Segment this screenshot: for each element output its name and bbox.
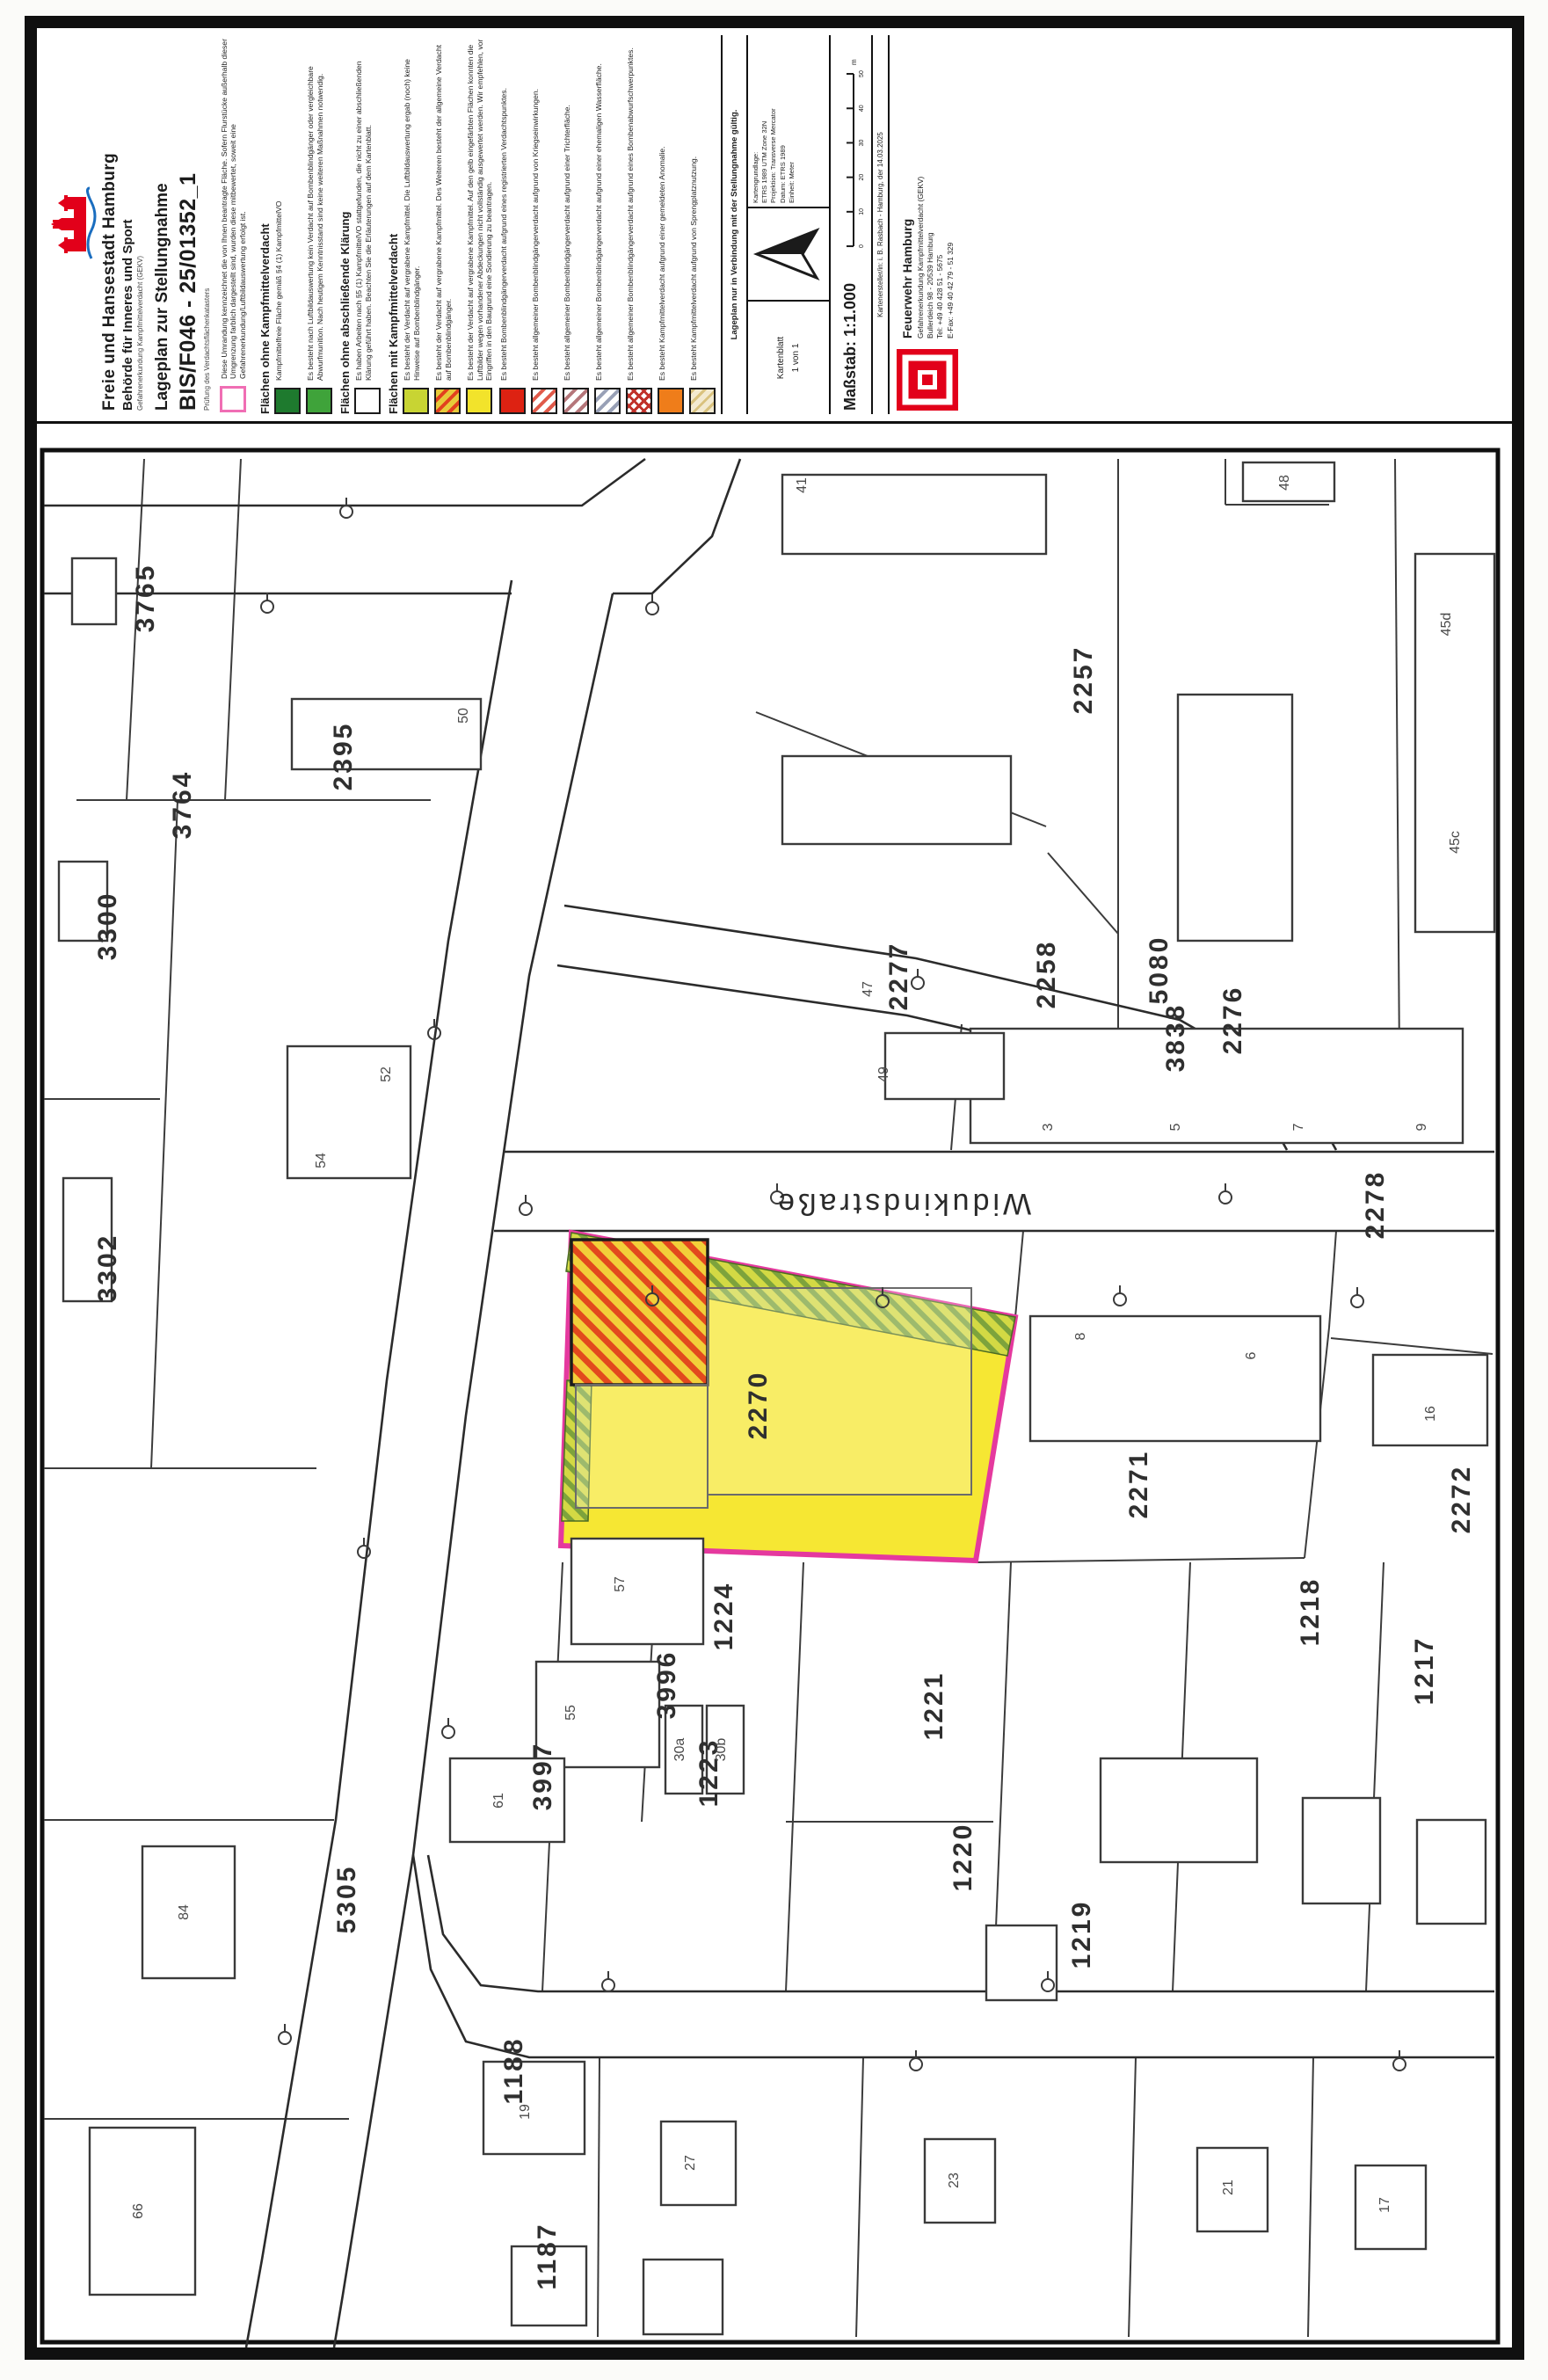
parcel-label-1221: 1221 (919, 1671, 948, 1741)
legend-section-title: Flächen ohne abschließende Klärung (338, 35, 352, 414)
house-number-label: 52 (379, 1066, 394, 1082)
house-number-label: 16 (1423, 1406, 1438, 1422)
legend-entry: Es besteht allgemeiner Bombenblindgänger… (531, 35, 557, 414)
parcel-label-1219: 1219 (1067, 1900, 1096, 1969)
parcel-label-2257: 2257 (1069, 645, 1098, 715)
legend-entry: Es besteht allgemeiner Bombenblindgänger… (563, 35, 589, 414)
legend-entry-text: Es besteht der Verdacht auf vergrabene K… (466, 35, 493, 381)
legend-entry: Es besteht Kampfmittelverdacht aufgrund … (689, 35, 716, 414)
building-outline (1417, 1820, 1486, 1924)
building-outline (782, 475, 1046, 554)
document-reference: BIS/F046 - 25/01352_1 (176, 39, 201, 411)
legend-swatch-lime-icon (403, 388, 429, 414)
house-number-label: 49 (876, 1066, 891, 1082)
house-number-label: 27 (683, 2155, 698, 2171)
legend-entry: Es besteht Kampfmittelverdacht aufgrund … (658, 35, 684, 414)
building-outline (1373, 1355, 1487, 1445)
legend-swatch-gray-hatch-icon (594, 388, 621, 414)
parcel-label-3997: 3997 (528, 1742, 557, 1811)
legend-entry: Es haben Arbeiten nach §5 (1) Kampfmitte… (354, 35, 381, 414)
title-legend-column: Freie und Hansestadt Hamburg Behörde für… (37, 28, 1512, 424)
map-basis-line: Datum: ETRS 1989 (779, 39, 788, 203)
house-number-label: 9 (1414, 1123, 1429, 1131)
house-number-label: 19 (518, 2104, 533, 2120)
legend-entry: Es besteht der Verdacht auf vergrabene K… (434, 35, 461, 414)
fire-tel: Tel: +49 40 428 51 - 5675 (935, 177, 945, 338)
parcel-label-3838: 3838 (1161, 1003, 1190, 1073)
legend-entry-text: Es besteht allgemeiner Bombenblindgänger… (626, 47, 635, 381)
parcel-label-2270: 2270 (744, 1371, 773, 1440)
house-number-label: 66 (131, 2203, 146, 2219)
parcel-label-2276: 2276 (1218, 986, 1247, 1055)
svg-text:0: 0 (859, 244, 865, 248)
house-number-label: 54 (314, 1153, 329, 1168)
scale-label: Maßstab: (841, 341, 859, 411)
agency-unit: Gefahrenerkundung Kampfmittelverdacht (G… (136, 39, 144, 411)
title-block: Freie und Hansestadt Hamburg Behörde für… (42, 35, 216, 414)
house-number-label: 84 (177, 1904, 192, 1920)
request-area-note: Diese Umrandung kennzeichnet die von Ihn… (216, 35, 252, 414)
legend-entry-text: Es besteht Bombenblindgängerverdacht auf… (499, 88, 508, 381)
legend-entry-text: Es besteht der Verdacht auf vergrabene K… (403, 35, 421, 381)
legend-swatch-red-cross-icon (626, 388, 652, 414)
fire-brigade-block: Feuerwehr Hamburg Gefahrenerkundung Kamp… (888, 35, 965, 414)
building-outline (72, 558, 116, 624)
legend-entry-text: Kampfmittelfreie Fläche gemäß §4 (1) Kam… (274, 201, 283, 381)
parcel-label-2258: 2258 (1032, 940, 1061, 1009)
house-number-label: 30b (714, 1738, 729, 1762)
validity-note: Lageplan nur in Verbindung mit der Stell… (721, 35, 746, 414)
legend-entry-text: Es besteht allgemeiner Bombenblindgänger… (594, 63, 603, 381)
legend-entry: Es besteht allgemeiner Bombenblindgänger… (626, 35, 652, 414)
building-outline (885, 1033, 1004, 1099)
house-number-label: 45d (1439, 613, 1454, 637)
house-number-label: 41 (795, 477, 810, 493)
fire-address: Bullerdeich 98 - 20539 Hamburg (926, 177, 935, 338)
building-outline (986, 1925, 1057, 2000)
house-number-label: 23 (947, 2173, 962, 2188)
building-outline (643, 2260, 723, 2334)
map-basis-info: Kartengrundlage:ETRS 1989 UTM Zone 32NPr… (748, 35, 829, 207)
parcel-label-2272: 2272 (1447, 1465, 1476, 1534)
document-subtitle: Prüfung des Verdachtsflächenkatasters (203, 39, 211, 411)
lageplan-sheet: 3765376423953300330253052257225850803838… (25, 16, 1524, 2360)
house-number-label: 7 (1291, 1123, 1306, 1131)
parcel-label-1187: 1187 (533, 2222, 562, 2289)
house-number-label: 61 (491, 1793, 506, 1809)
building-outline (571, 1539, 703, 1644)
legend-swatch-orange-icon (658, 388, 684, 414)
building-outline (782, 756, 1011, 844)
house-number-label: 50 (456, 708, 471, 724)
parcel-label-3765: 3765 (131, 564, 160, 633)
parcel-label-1224: 1224 (709, 1582, 738, 1651)
parcel-label-3764: 3764 (168, 770, 197, 840)
parcel-label-2278: 2278 (1361, 1170, 1390, 1240)
parcel-label-1220: 1220 (948, 1823, 977, 1892)
map-basis-line: Projektion: Transverse Mercator (769, 39, 778, 203)
parcel-label-1217: 1217 (1410, 1636, 1439, 1706)
house-number-label: 48 (1277, 475, 1292, 491)
legend-entry: Es besteht Bombenblindgängerverdacht auf… (499, 35, 526, 414)
svg-text:30: 30 (859, 139, 865, 146)
map-canvas: 3765376423953300330253052257225850803838… (37, 424, 1512, 2347)
legend-swatch-white-icon (354, 388, 381, 414)
svg-text:20: 20 (859, 174, 865, 181)
parcel-label-1188: 1188 (499, 2036, 528, 2104)
agency-department: Behörde für Inneres und Sport (120, 39, 135, 411)
parcel-label-3302: 3302 (93, 1234, 122, 1303)
legend-swatch-beige-hatch-icon (689, 388, 716, 414)
feuerwehr-hamburg-logo-icon (895, 347, 960, 412)
creator-line: Kartenersteller/in: i. B. Rasbach - Hamb… (871, 35, 888, 414)
map-area: 3765376423953300330253052257225850803838… (37, 424, 1512, 2347)
rotated-sheet-wrapper: 3765376423953300330253052257225850803838… (25, 16, 1524, 2360)
suspect-building-red-hatch (571, 1240, 708, 1385)
legend-section-title: Flächen mit Kampfmittelverdacht (387, 35, 400, 414)
legend-swatch-red-hatch-icon (531, 388, 557, 414)
legend-entry: Es besteht allgemeiner Bombenblindgänger… (594, 35, 621, 414)
legend-entry: Kampfmittelfreie Fläche gemäß §4 (1) Kam… (274, 35, 301, 414)
hamburg-coat-of-arms-icon (44, 187, 98, 263)
legend-section-title: Flächen ohne Kampfmittelverdacht (258, 35, 272, 414)
map-basis-line: ETRS 1989 UTM Zone 32N (760, 39, 769, 203)
north-arrow-cell (748, 207, 829, 300)
document-type: Lageplan zur Stellungnahme (153, 39, 172, 411)
house-number-label: 55 (563, 1705, 578, 1721)
house-number-label: 45c (1448, 831, 1463, 854)
legend-swatch-yellow-icon (466, 388, 492, 414)
legend-entry: Es besteht nach Luftbildauswertung kein … (306, 35, 332, 414)
legend-entry-text: Es haben Arbeiten nach §5 (1) Kampfmitte… (354, 35, 373, 381)
house-number-label: 3 (1041, 1123, 1056, 1131)
legend-entry-text: Es besteht der Verdacht auf vergrabene K… (434, 35, 453, 381)
legend-entry: Es besteht der Verdacht auf vergrabene K… (403, 35, 429, 414)
svg-text:50: 50 (859, 70, 865, 77)
svg-text:40: 40 (859, 105, 865, 112)
parcel-label-2395: 2395 (329, 722, 358, 791)
legend-entry-text: Es besteht nach Luftbildauswertung kein … (306, 35, 324, 381)
legend-sections: Flächen ohne KampfmittelverdachtKampfmit… (252, 35, 720, 414)
legend-entry-text: Es besteht allgemeiner Bombenblindgänger… (563, 105, 571, 381)
parcel-label-1218: 1218 (1296, 1577, 1325, 1647)
house-number-label: 17 (1377, 2197, 1392, 2213)
house-number-label: 6 (1244, 1351, 1259, 1359)
fire-fax: E-Fax: +49 40 42 79 - 51 329 (946, 177, 956, 338)
legend-entry-text: Es besteht Kampfmittelverdacht aufgrund … (658, 146, 666, 381)
building-outline (1303, 1798, 1380, 1903)
building-outline (292, 699, 481, 769)
map-basis-line: Einheit: Meter (788, 39, 796, 203)
request-outline-swatch-icon (220, 386, 246, 412)
building-outline-highlighted (576, 1385, 708, 1508)
house-number-label: 5 (1168, 1123, 1183, 1131)
parcel-label-2277: 2277 (884, 942, 913, 1011)
building-outline (1415, 554, 1494, 932)
house-number-label: 57 (613, 1576, 628, 1592)
house-number-label: 47 (861, 981, 876, 997)
parcel-label-2271: 2271 (1124, 1450, 1153, 1519)
fire-dept: Gefahrenerkundung Kampfmittelverdacht (G… (916, 177, 926, 338)
page-background: 3765376423953300330253052257225850803838… (0, 0, 1548, 2380)
legend-swatch-brown-hatch-icon (563, 388, 589, 414)
parcel-label-3300: 3300 (93, 892, 122, 961)
kartenblatt-value: 1 von 1 (791, 305, 801, 411)
request-area-note-text: Diese Umrandung kennzeichnet die von Ihn… (220, 37, 247, 379)
house-number-label: 8 (1073, 1332, 1088, 1340)
legend-swatch-green-icon (306, 388, 332, 414)
kartenblatt-label: Kartenblatt (776, 305, 786, 411)
kartenblatt-cell: Kartenblatt 1 von 1 (748, 300, 829, 414)
legend-swatch-lime-red-hatch-icon (434, 388, 461, 414)
legend-entry: Es besteht der Verdacht auf vergrabene K… (466, 35, 493, 414)
parcel-label-5305: 5305 (332, 1865, 361, 1934)
map-meta-row: Kartenblatt 1 von 1 Kartengrundlage:ETRS… (746, 35, 829, 414)
north-arrow-icon (752, 223, 825, 285)
fire-title: Feuerwehr Hamburg (899, 177, 916, 338)
map-basis-line: Kartengrundlage: (752, 39, 760, 203)
house-number-label: 21 (1221, 2180, 1236, 2195)
legend-swatch-dark-green-icon (274, 388, 301, 414)
scale-row: Maßstab: 1:1.000 01020304050m (829, 35, 871, 414)
building-outline (1178, 695, 1292, 941)
building-outline (661, 2122, 736, 2205)
scanned-lageplan-page: { "header": { "agency_line1": "Freie und… (0, 0, 1548, 2380)
legend-entry-text: Es besteht Kampfmittelverdacht aufgrund … (689, 156, 698, 381)
legend-swatch-red-icon (499, 388, 526, 414)
house-number-label: 30a (672, 1738, 687, 1762)
building-outline (1101, 1758, 1257, 1862)
svg-text:m: m (850, 59, 858, 65)
parcel-label-3996: 3996 (652, 1650, 681, 1720)
scale-bar: 01020304050m (836, 39, 866, 274)
street-name-label: Widukindstraße (774, 1187, 1031, 1220)
svg-text:10: 10 (859, 208, 865, 215)
agency-name: Freie und Hansestadt Hamburg (100, 39, 120, 411)
parcel-label-5080: 5080 (1145, 935, 1174, 1005)
scale-value: 1:1.000 (841, 283, 859, 337)
legend-entry-text: Es besteht allgemeiner Bombenblindgänger… (531, 89, 540, 381)
